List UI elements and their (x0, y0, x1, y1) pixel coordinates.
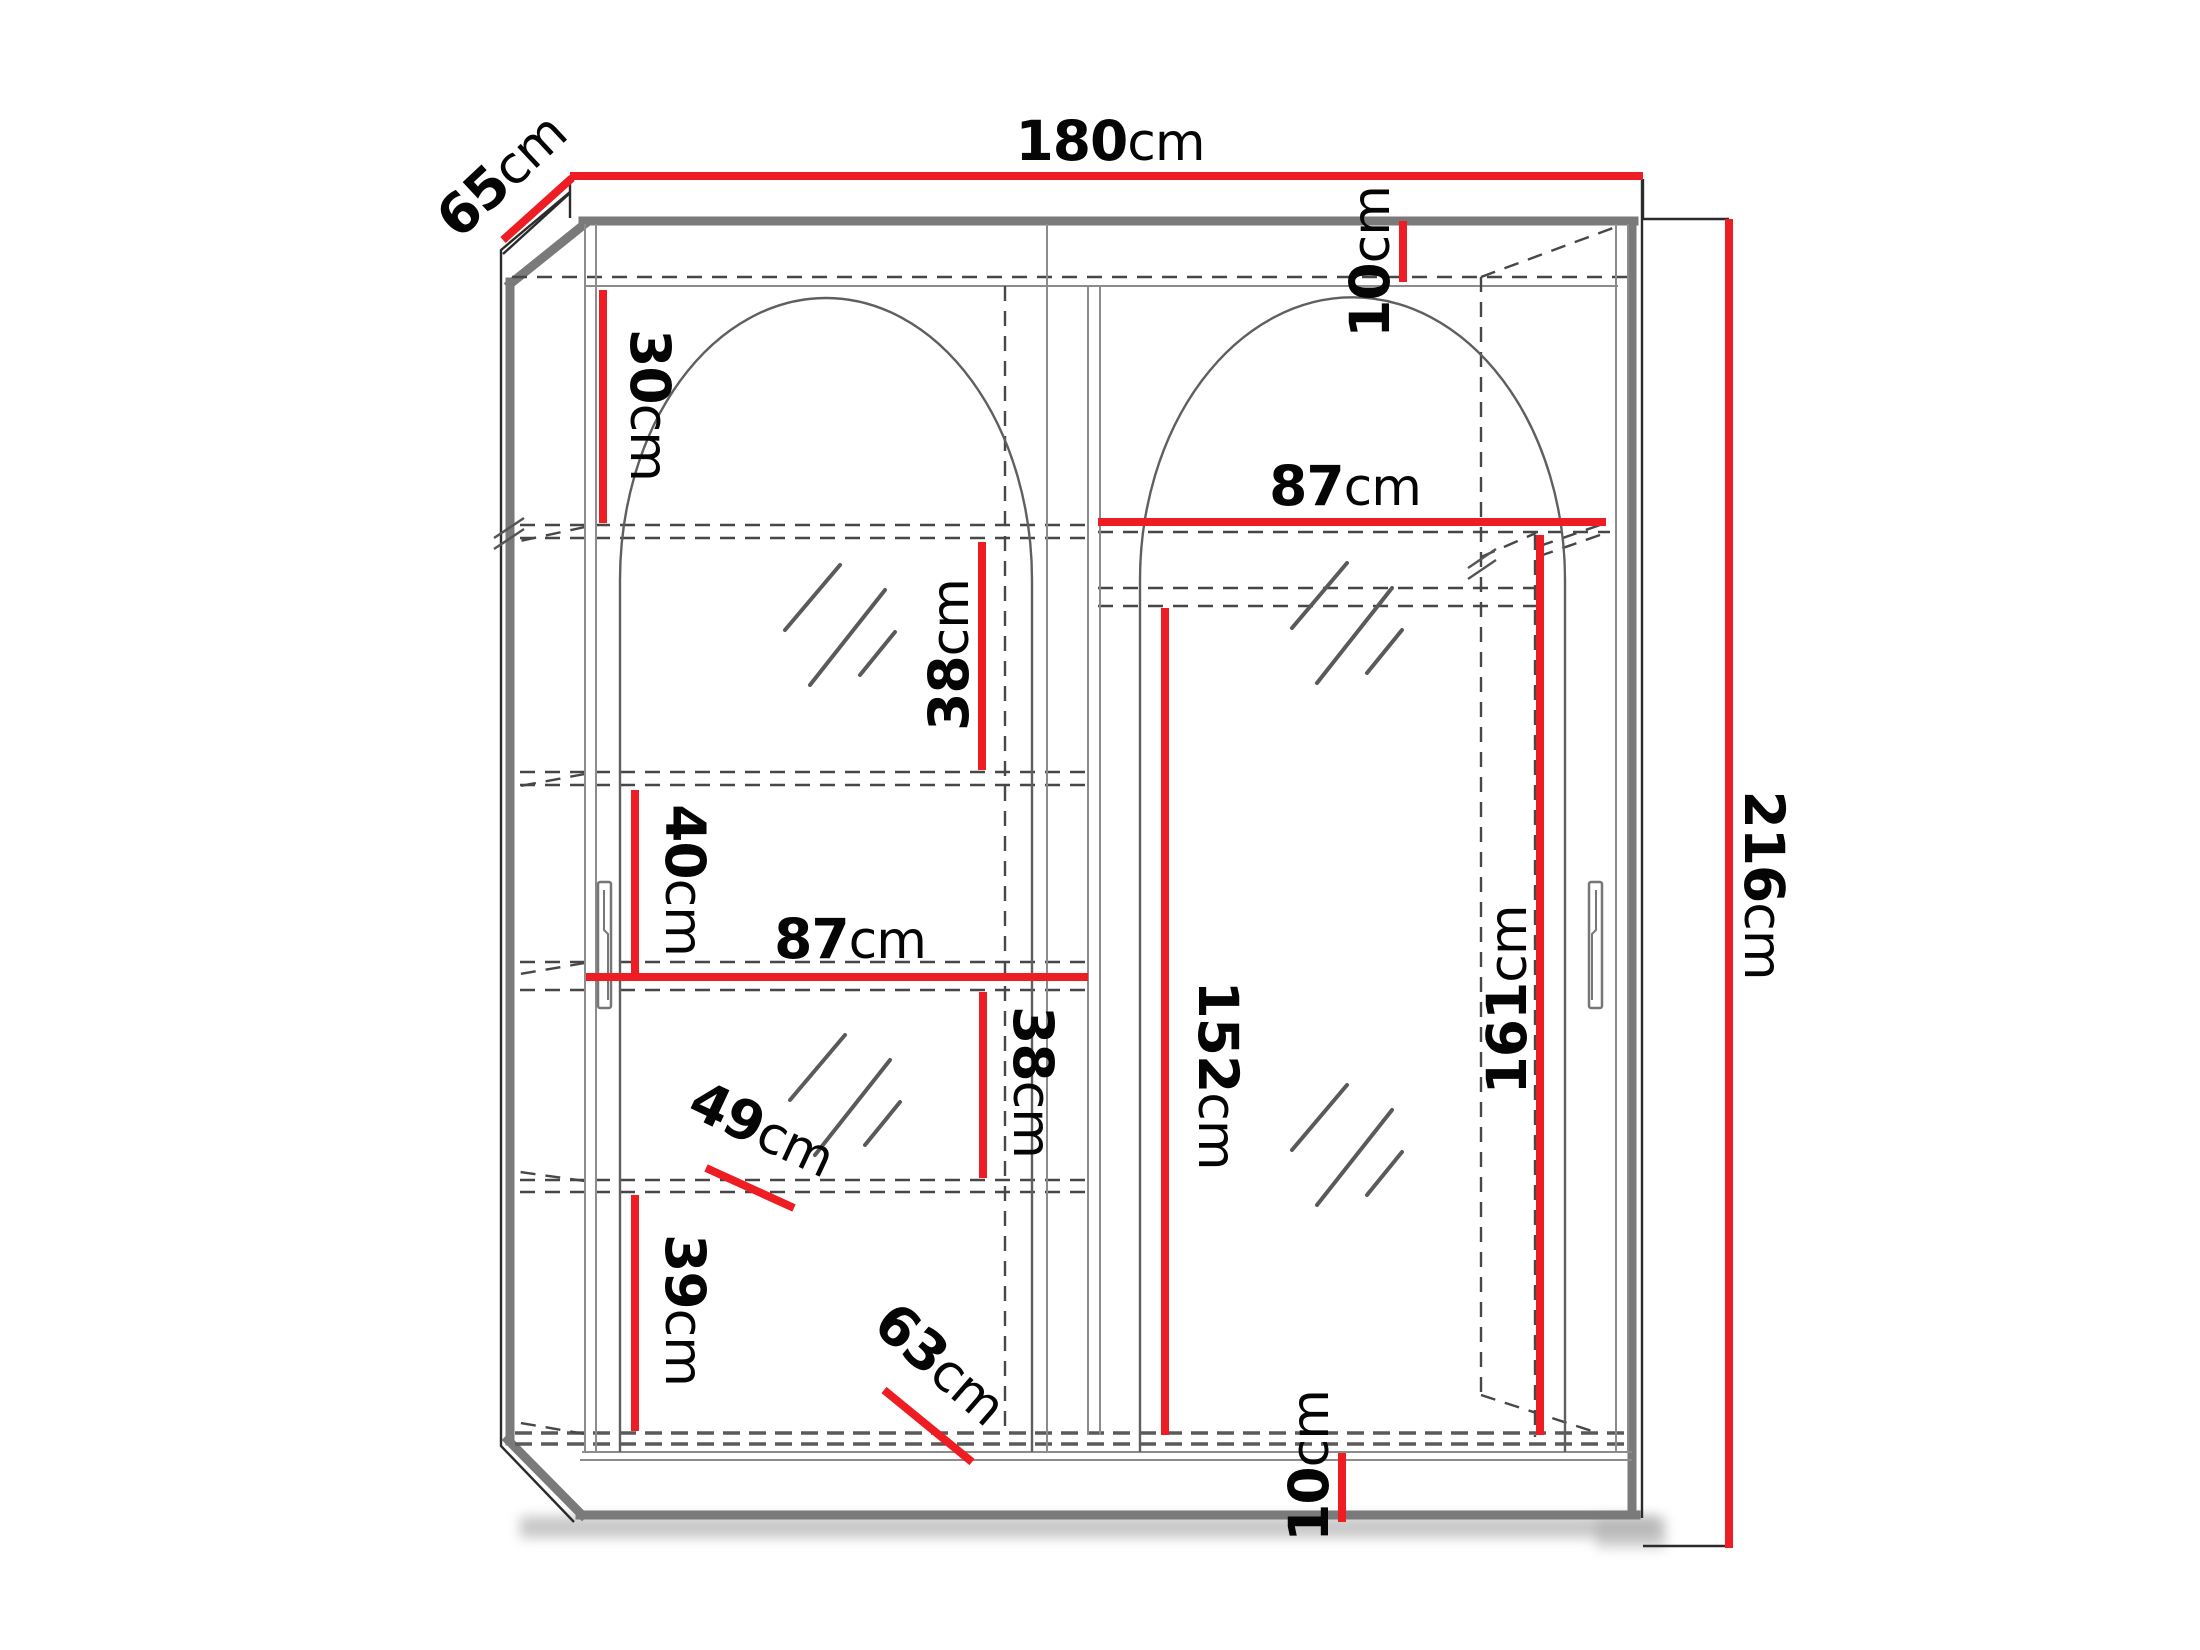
sliding-doors (585, 224, 1628, 1452)
label-top-gap-10: 10cm (1338, 186, 1402, 338)
dimension-line-49-diagonal (706, 1168, 794, 1208)
mirror-glint-left-upper (785, 565, 895, 685)
right-shelf-depth-edge-1 (1537, 525, 1600, 547)
shadow-corner (1596, 1518, 1666, 1548)
label-height-216: 216cm (1732, 790, 1796, 979)
label-40: 40cm (653, 804, 717, 956)
right-shelf-depth-edge-2 (1537, 535, 1600, 557)
label-152: 152cm (1186, 980, 1250, 1169)
label-bottom-gap-10: 10cm (1277, 1390, 1341, 1542)
label-38-lower: 38cm (1001, 1006, 1065, 1158)
label-depth-65: 65cm (424, 100, 579, 250)
label-width-180: 180cm (1015, 109, 1204, 173)
diagram-page: 180cm 65cm 216cm 10cm 10cm 30cm 38cm 40c… (0, 0, 2200, 1650)
floor-shadow (520, 1516, 1666, 1548)
label-161: 161cm (1475, 905, 1539, 1094)
depth-diagonal-top-right (1481, 225, 1621, 277)
label-38-upper: 38cm (917, 579, 981, 731)
mirror-glint-right-lower (1292, 1085, 1402, 1205)
label-87-left: 87cm (774, 907, 926, 971)
wardrobe-diagram-canvas: 180cm 65cm 216cm 10cm 10cm 30cm 38cm 40c… (0, 0, 2200, 1650)
right-interior (1098, 525, 1610, 606)
label-63: 63cm (862, 1290, 1019, 1438)
bottom-left-chamfer (508, 1440, 582, 1515)
dimension-labels: 180cm 65cm 216cm 10cm 10cm 30cm 38cm 40c… (424, 100, 1796, 1542)
label-39: 39cm (653, 1234, 717, 1386)
mirror-glint-right-upper (1292, 563, 1402, 683)
label-87-right: 87cm (1269, 454, 1421, 518)
right-door-handle (1589, 882, 1602, 1008)
base-structure (515, 1422, 1632, 1460)
label-30: 30cm (618, 329, 682, 481)
shelf-3-depth-edge (520, 963, 585, 974)
left-door-handle (598, 882, 611, 1008)
